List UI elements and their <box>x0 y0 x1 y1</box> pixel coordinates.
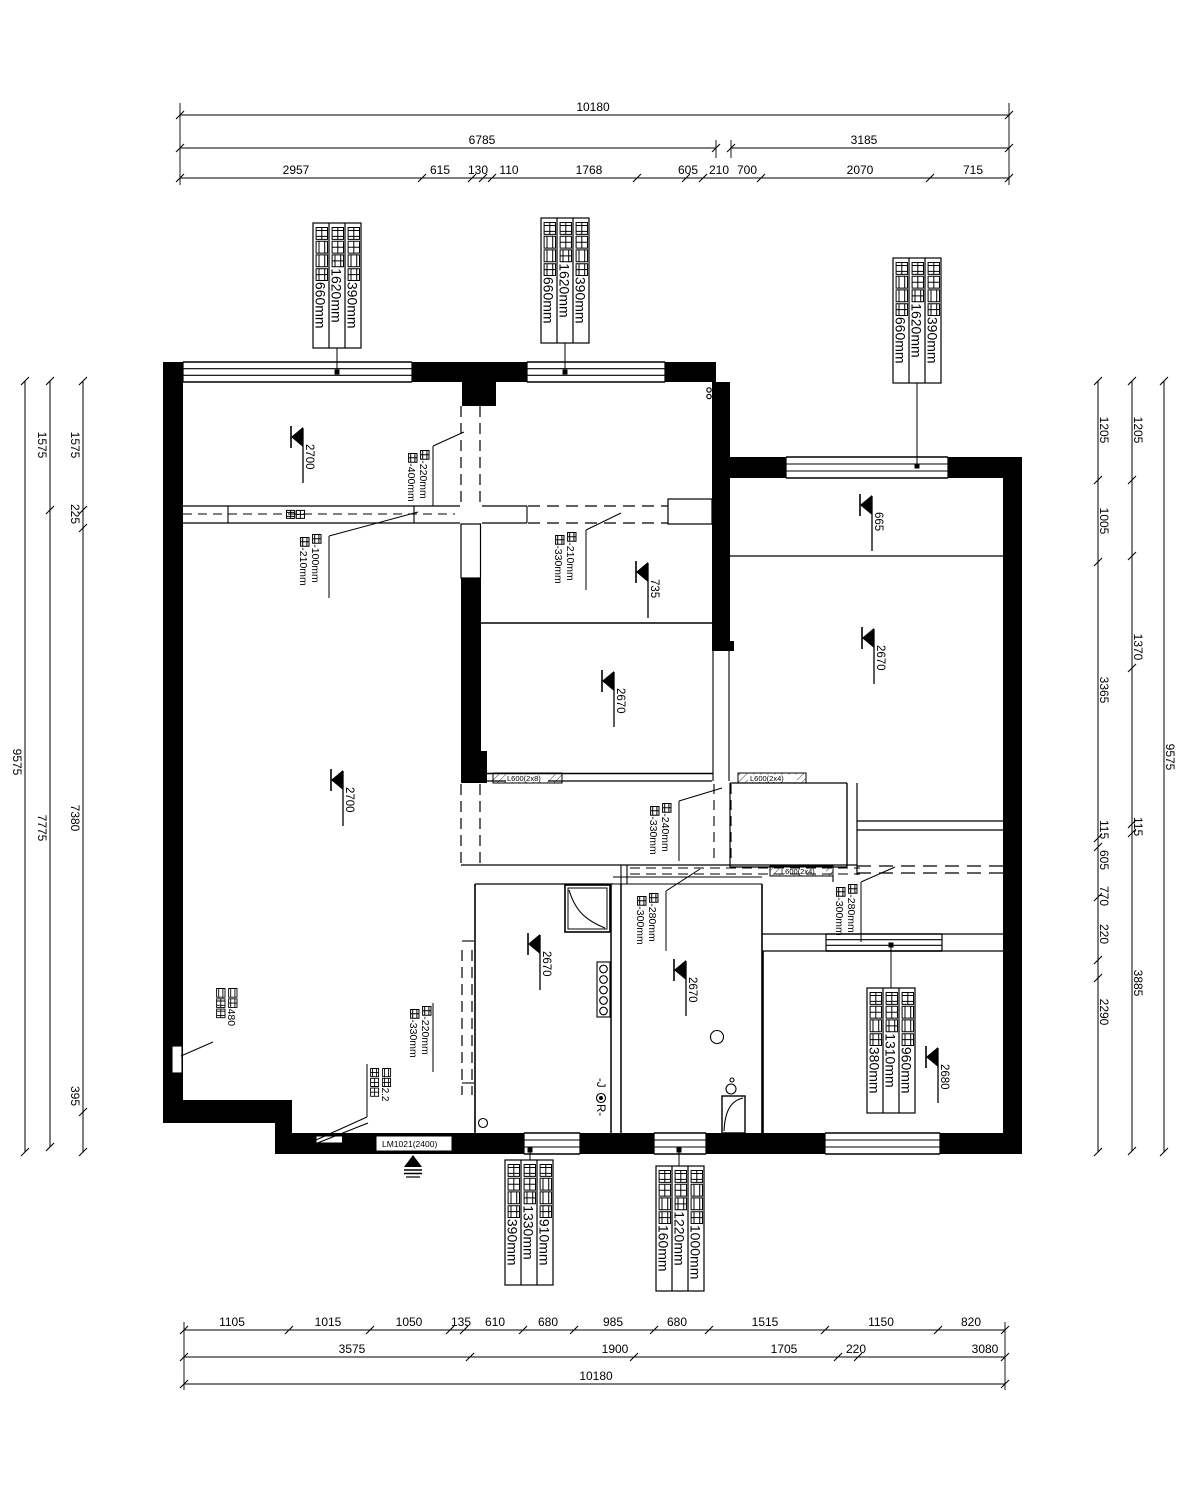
svg-text:-400mm: -400mm <box>405 463 417 502</box>
svg-text:-100mm: -100mm <box>309 544 321 583</box>
svg-text:380mm: 380mm <box>867 1047 883 1094</box>
svg-text:680: 680 <box>667 1315 687 1329</box>
svg-text:130: 130 <box>468 163 488 177</box>
svg-text:665: 665 <box>872 512 884 531</box>
svg-text:-280mm: -280mm <box>646 903 658 942</box>
svg-text:1900: 1900 <box>602 1342 629 1356</box>
svg-text:1370: 1370 <box>1131 634 1145 661</box>
svg-text:660mm: 660mm <box>541 277 557 324</box>
svg-text:2670: 2670 <box>874 645 886 671</box>
svg-text:1220mm: 1220mm <box>672 1211 688 1265</box>
svg-text:2700: 2700 <box>303 444 315 470</box>
svg-text:3080: 3080 <box>972 1342 999 1356</box>
svg-text:R-: R- <box>594 1104 606 1116</box>
svg-text:3885: 3885 <box>1131 970 1145 997</box>
svg-text:1575: 1575 <box>35 432 49 459</box>
svg-text:-330mm: -330mm <box>647 816 659 855</box>
svg-text:3365: 3365 <box>1097 677 1111 704</box>
svg-text:960mm: 960mm <box>899 1047 915 1094</box>
svg-text:-210mm: -210mm <box>564 542 576 581</box>
svg-text:985: 985 <box>603 1315 623 1329</box>
svg-text:1205: 1205 <box>1131 417 1145 444</box>
svg-text:770: 770 <box>1097 886 1111 906</box>
svg-text:2670: 2670 <box>686 977 698 1003</box>
svg-text:1330mm: 1330mm <box>521 1205 537 1259</box>
svg-text:-240mm: -240mm <box>659 813 671 852</box>
svg-text:715: 715 <box>963 163 983 177</box>
svg-text:1310mm: 1310mm <box>883 1033 899 1087</box>
svg-text:-220mm: -220mm <box>417 460 429 499</box>
svg-text:1620mm: 1620mm <box>557 263 573 317</box>
svg-text:1705: 1705 <box>771 1342 798 1356</box>
svg-text:1150: 1150 <box>868 1315 894 1329</box>
svg-text:480: 480 <box>225 1009 237 1027</box>
svg-text:1050: 1050 <box>396 1315 423 1329</box>
svg-text:610: 610 <box>485 1315 505 1329</box>
svg-text:820: 820 <box>961 1315 981 1329</box>
svg-text:L600(2x8): L600(2x8) <box>507 774 541 783</box>
svg-text:160mm: 160mm <box>656 1225 672 1272</box>
svg-text:390mm: 390mm <box>345 282 361 329</box>
svg-text:115: 115 <box>1097 820 1111 839</box>
svg-text:9575: 9575 <box>1163 744 1177 771</box>
svg-text:1768: 1768 <box>576 163 603 177</box>
svg-text:2.2: 2.2 <box>379 1088 390 1102</box>
svg-text:2670: 2670 <box>614 688 626 714</box>
svg-text:LM1021(2400): LM1021(2400) <box>382 1139 437 1149</box>
svg-text:3575: 3575 <box>339 1342 366 1356</box>
svg-text:115: 115 <box>1131 817 1145 836</box>
svg-text:-330mm: -330mm <box>552 545 564 584</box>
svg-text:700: 700 <box>737 163 757 177</box>
svg-text:390mm: 390mm <box>925 317 941 364</box>
svg-text:1105: 1105 <box>219 1315 245 1329</box>
svg-text:-280mm: -280mm <box>845 894 857 933</box>
svg-text:735: 735 <box>648 579 660 598</box>
svg-text:-330mm: -330mm <box>407 1019 419 1058</box>
svg-text:2290: 2290 <box>1097 999 1111 1026</box>
svg-text:2670: 2670 <box>540 951 552 977</box>
svg-text:-220mm: -220mm <box>419 1016 431 1055</box>
svg-text:615: 615 <box>430 163 450 177</box>
svg-text:7380: 7380 <box>68 805 82 832</box>
svg-text:1000mm: 1000mm <box>688 1225 704 1279</box>
svg-text:220: 220 <box>1097 924 1111 944</box>
svg-text:210: 210 <box>709 163 729 177</box>
svg-text:10180: 10180 <box>576 100 610 114</box>
svg-text:-J: -J <box>594 1078 606 1088</box>
svg-text:1620mm: 1620mm <box>329 268 345 322</box>
svg-text:1620mm: 1620mm <box>909 303 925 357</box>
svg-text:-210mm: -210mm <box>297 547 309 586</box>
svg-text:-300mm: -300mm <box>634 906 646 945</box>
svg-text:220: 220 <box>846 1342 866 1356</box>
svg-text:2700: 2700 <box>343 787 355 813</box>
svg-text:680: 680 <box>538 1315 558 1329</box>
svg-text:660mm: 660mm <box>313 282 329 329</box>
svg-text:2957: 2957 <box>283 163 310 177</box>
svg-text:605: 605 <box>1097 850 1111 870</box>
svg-text:2680: 2680 <box>938 1064 950 1090</box>
svg-text:390mm: 390mm <box>573 277 589 324</box>
svg-text:135: 135 <box>451 1315 471 1329</box>
svg-text:605: 605 <box>678 163 698 177</box>
svg-text:3185: 3185 <box>851 133 878 147</box>
svg-text:-300mm: -300mm <box>833 897 845 936</box>
svg-text:10180: 10180 <box>579 1369 613 1383</box>
svg-text:1015: 1015 <box>315 1315 342 1329</box>
svg-text:660mm: 660mm <box>893 317 909 364</box>
svg-text:2070: 2070 <box>847 163 874 177</box>
svg-text:1005: 1005 <box>1097 508 1111 535</box>
svg-text:910mm: 910mm <box>537 1219 553 1266</box>
svg-text:1205: 1205 <box>1097 417 1111 444</box>
svg-text:395: 395 <box>68 1086 82 1106</box>
svg-text:L600(2x4): L600(2x4) <box>750 774 784 783</box>
svg-text:390mm: 390mm <box>505 1219 521 1266</box>
svg-text:1515: 1515 <box>752 1315 779 1329</box>
svg-text:7775: 7775 <box>35 815 49 842</box>
svg-text:9575: 9575 <box>10 749 24 776</box>
svg-text:225: 225 <box>68 504 82 524</box>
svg-text:6785: 6785 <box>469 133 496 147</box>
svg-text:110: 110 <box>499 163 518 177</box>
svg-text:1575: 1575 <box>68 432 82 459</box>
